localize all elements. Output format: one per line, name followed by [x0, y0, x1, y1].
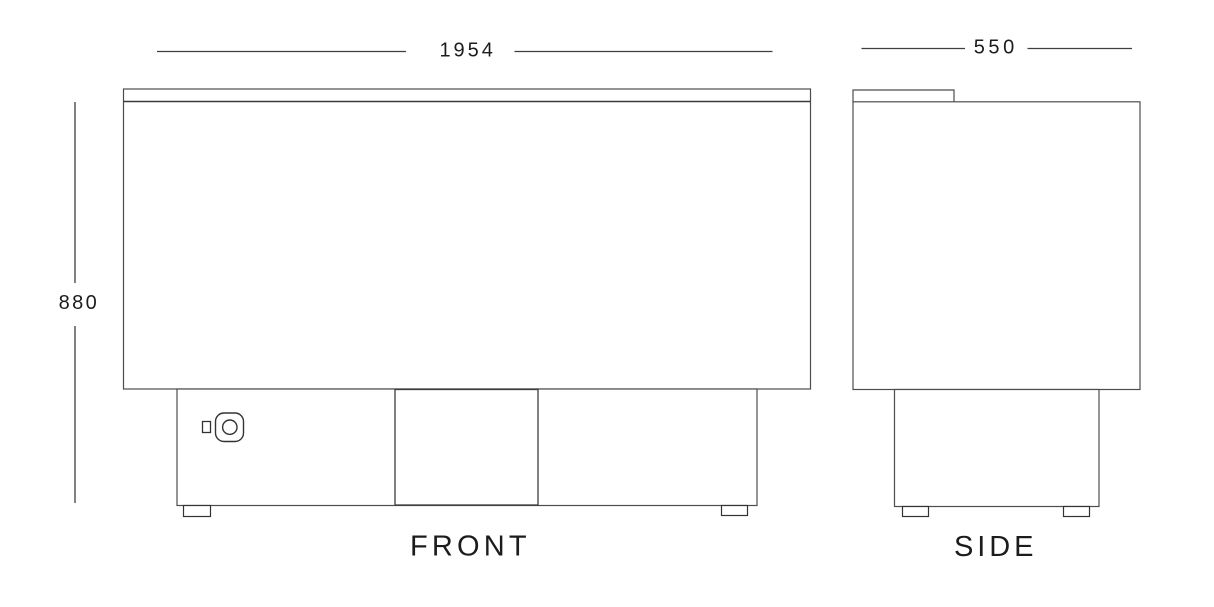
svg-text:880: 880 [59, 292, 100, 314]
svg-text:SIDE: SIDE [954, 531, 1037, 563]
svg-text:1954: 1954 [439, 40, 496, 62]
svg-text:FRONT: FRONT [410, 531, 531, 563]
svg-text:550: 550 [974, 37, 1018, 59]
